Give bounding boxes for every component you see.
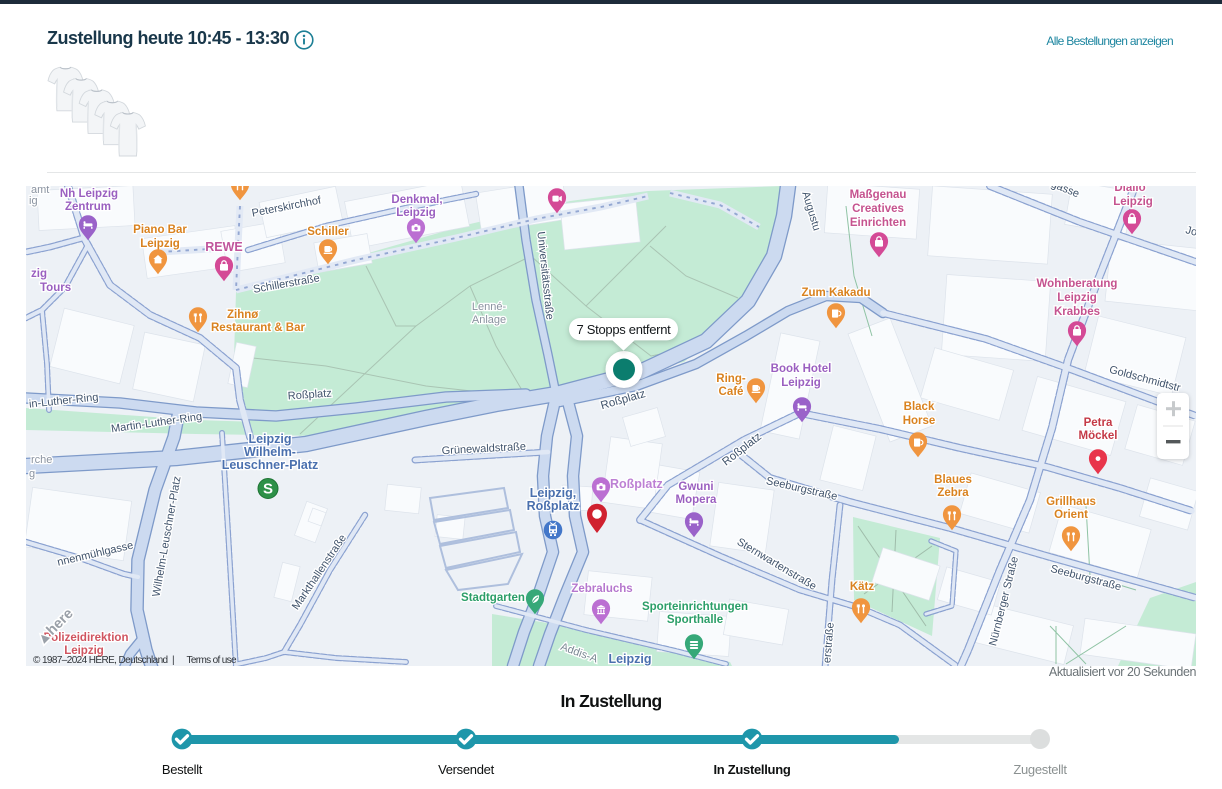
svg-text:Kätz: Kätz bbox=[850, 581, 875, 593]
svg-text:Leipzig: Leipzig bbox=[781, 377, 821, 389]
svg-text:Leuschner-Platz: Leuschner-Platz bbox=[222, 458, 319, 472]
svg-text:Café: Café bbox=[719, 386, 744, 398]
svg-text:Roßplatz: Roßplatz bbox=[610, 477, 663, 491]
svg-text:Zebra: Zebra bbox=[937, 487, 969, 499]
svg-text:7 Stopps entfernt: 7 Stopps entfernt bbox=[577, 322, 672, 337]
svg-text:Krabbes: Krabbes bbox=[1054, 306, 1100, 318]
svg-text:Leipzig: Leipzig bbox=[140, 238, 180, 250]
svg-text:Zihnø: Zihnø bbox=[227, 309, 258, 321]
svg-text:Mopera: Mopera bbox=[676, 494, 718, 506]
svg-text:Zebraluchs: Zebraluchs bbox=[571, 583, 632, 595]
svg-text:Piano Bar: Piano Bar bbox=[133, 224, 187, 236]
svg-text:Sporteinrichtungen: Sporteinrichtungen bbox=[642, 601, 748, 613]
svg-text:© 1987–2024 HERE, Deutschland: © 1987–2024 HERE, Deutschland bbox=[33, 655, 168, 666]
svg-text:zig: zig bbox=[31, 268, 47, 280]
svg-text:Leipzig: Leipzig bbox=[396, 207, 436, 219]
svg-text:Leipzig: Leipzig bbox=[1113, 196, 1153, 208]
svg-text:|: | bbox=[172, 655, 175, 666]
svg-text:Leipzig: Leipzig bbox=[1057, 292, 1097, 304]
svg-text:Schiller: Schiller bbox=[307, 226, 349, 238]
svg-text:Zum Kakadu: Zum Kakadu bbox=[801, 287, 870, 299]
svg-text:Zentrum: Zentrum bbox=[65, 201, 111, 213]
svg-text:Horse: Horse bbox=[903, 415, 936, 427]
svg-text:Leipzig: Leipzig bbox=[608, 652, 651, 666]
svg-text:Roßplatz: Roßplatz bbox=[527, 499, 580, 513]
svg-text:ig: ig bbox=[29, 195, 38, 207]
svg-text:Orient: Orient bbox=[1054, 509, 1088, 521]
svg-text:Sporthalle: Sporthalle bbox=[667, 614, 723, 626]
svg-text:Gwuni: Gwuni bbox=[678, 481, 713, 493]
svg-text:Creatives: Creatives bbox=[852, 203, 904, 215]
svg-text:Nh Leipzig: Nh Leipzig bbox=[60, 188, 118, 200]
svg-text:Denkmal,: Denkmal, bbox=[391, 194, 442, 206]
svg-text:Ring-: Ring- bbox=[716, 373, 746, 385]
svg-text:Wilhelm-: Wilhelm- bbox=[244, 445, 296, 459]
svg-text:S: S bbox=[263, 481, 273, 498]
svg-text:Grillhaus: Grillhaus bbox=[1046, 496, 1096, 508]
svg-text:g: g bbox=[29, 468, 35, 480]
svg-text:Restaurant & Bar: Restaurant & Bar bbox=[211, 322, 305, 334]
svg-text:Leipzig,: Leipzig, bbox=[530, 486, 577, 500]
svg-text:rche: rche bbox=[31, 454, 52, 466]
svg-text:Book Hotel: Book Hotel bbox=[771, 363, 832, 375]
svg-text:Einrichten: Einrichten bbox=[850, 217, 906, 229]
svg-text:Diallo: Diallo bbox=[1114, 186, 1145, 194]
svg-text:Petra: Petra bbox=[1084, 417, 1113, 429]
svg-text:Stadtgarten: Stadtgarten bbox=[461, 592, 525, 604]
svg-text:Terms of use: Terms of use bbox=[187, 655, 238, 666]
svg-text:Blaues: Blaues bbox=[934, 474, 972, 486]
svg-text:Wohnberatung: Wohnberatung bbox=[1037, 278, 1118, 290]
svg-text:Maßgenau: Maßgenau bbox=[850, 189, 907, 201]
svg-text:Lenné-: Lenné- bbox=[472, 301, 507, 313]
svg-text:Anlage: Anlage bbox=[472, 314, 506, 326]
svg-text:Möckel: Möckel bbox=[1079, 430, 1118, 442]
svg-text:Tours: Tours bbox=[40, 282, 71, 294]
svg-text:Black: Black bbox=[904, 401, 935, 413]
svg-text:Leipzig: Leipzig bbox=[248, 432, 291, 446]
svg-text:REWE: REWE bbox=[205, 240, 243, 254]
